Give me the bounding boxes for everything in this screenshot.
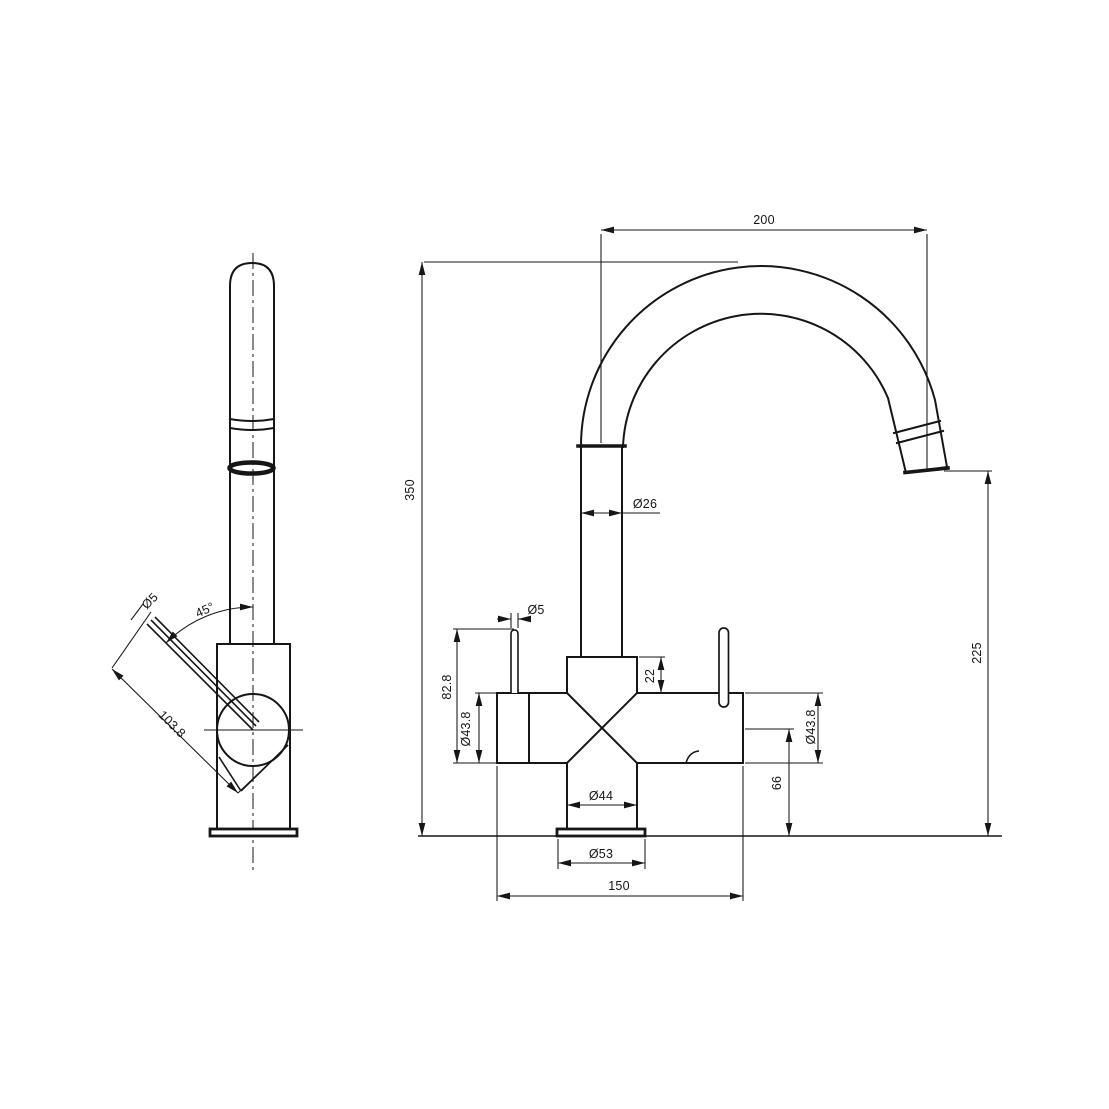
dim-reach-label: 200 — [753, 213, 774, 227]
right-handle-notch — [686, 751, 699, 763]
dim-side-lever-diameter-label: Ø5 — [139, 590, 161, 612]
dim-lever-angle-label: 45° — [193, 600, 217, 621]
outlet-ring-upper — [894, 421, 940, 433]
dim-lever-length-label: 103.8 — [156, 708, 189, 741]
dim-handle-height: 82.8 — [440, 629, 514, 763]
side-outlet-ellipse — [230, 463, 274, 474]
extension-line — [238, 745, 288, 793]
dim-handle-diameter-right: Ø43.8 — [745, 693, 823, 763]
dim-pin-diameter-front-label: Ø5 — [527, 603, 544, 617]
side-aerator-seam-lower — [230, 428, 274, 430]
front-base-plate — [557, 829, 645, 836]
dim-footprint-width-label: 150 — [608, 879, 629, 893]
dim-center-height-label: 66 — [770, 776, 784, 790]
dim-lever-length: 103.8 — [112, 669, 288, 793]
left-lever-pin — [511, 630, 518, 693]
dim-tick — [131, 604, 143, 620]
side-base-plate — [210, 829, 297, 836]
dim-lever-angle: 45° — [166, 600, 253, 643]
dim-handle-diameter-left: Ø43.8 — [459, 693, 497, 763]
technical-drawing-sheet: Ø5 45° 103.8 — [0, 0, 1109, 1109]
side-view: Ø5 45° 103.8 — [112, 253, 303, 873]
dim-neck-diameter: Ø44 — [567, 789, 637, 805]
side-aerator-seam-upper — [230, 419, 274, 421]
faucet-dimension-drawing: Ø5 45° 103.8 — [0, 0, 1109, 1109]
spout-arc — [581, 266, 947, 473]
dim-top-section-label: 22 — [643, 669, 657, 683]
dim-center-height: 66 — [745, 729, 794, 836]
dim-handle-diameter-left-label: Ø43.8 — [459, 711, 473, 746]
dim-handle-diameter-right-label: Ø43.8 — [804, 709, 818, 744]
dim-overall-height-label: 350 — [403, 479, 417, 500]
dim-side-lever-diameter: Ø5 — [112, 590, 161, 668]
right-lever-pin — [719, 628, 729, 707]
dim-reach: 200 — [601, 213, 927, 470]
dim-base-diameter: Ø53 — [558, 839, 645, 869]
dimensions: 200 350 225 Ø26 Ø5 — [403, 213, 992, 901]
dim-outlet-height-label: 225 — [970, 642, 984, 663]
side-spout-tube — [230, 263, 274, 643]
dim-handle-height-label: 82.8 — [440, 674, 454, 699]
dim-neck-diameter-label: Ø44 — [589, 789, 613, 803]
dim-line — [112, 612, 151, 668]
dim-outlet-height: 225 — [944, 471, 992, 836]
dim-spout-diameter-label: Ø26 — [633, 497, 657, 511]
dim-base-diameter-label: Ø53 — [589, 847, 613, 861]
dim-pin-diameter-front: Ø5 — [497, 603, 545, 628]
dim-spout-diameter: Ø26 — [581, 497, 660, 513]
front-view — [418, 266, 1002, 836]
side-lever-edge-3 — [155, 617, 259, 722]
dim-overall-height: 350 — [403, 262, 738, 836]
dim-top-section: 22 — [639, 657, 665, 693]
outlet-ring-lower — [897, 431, 943, 443]
